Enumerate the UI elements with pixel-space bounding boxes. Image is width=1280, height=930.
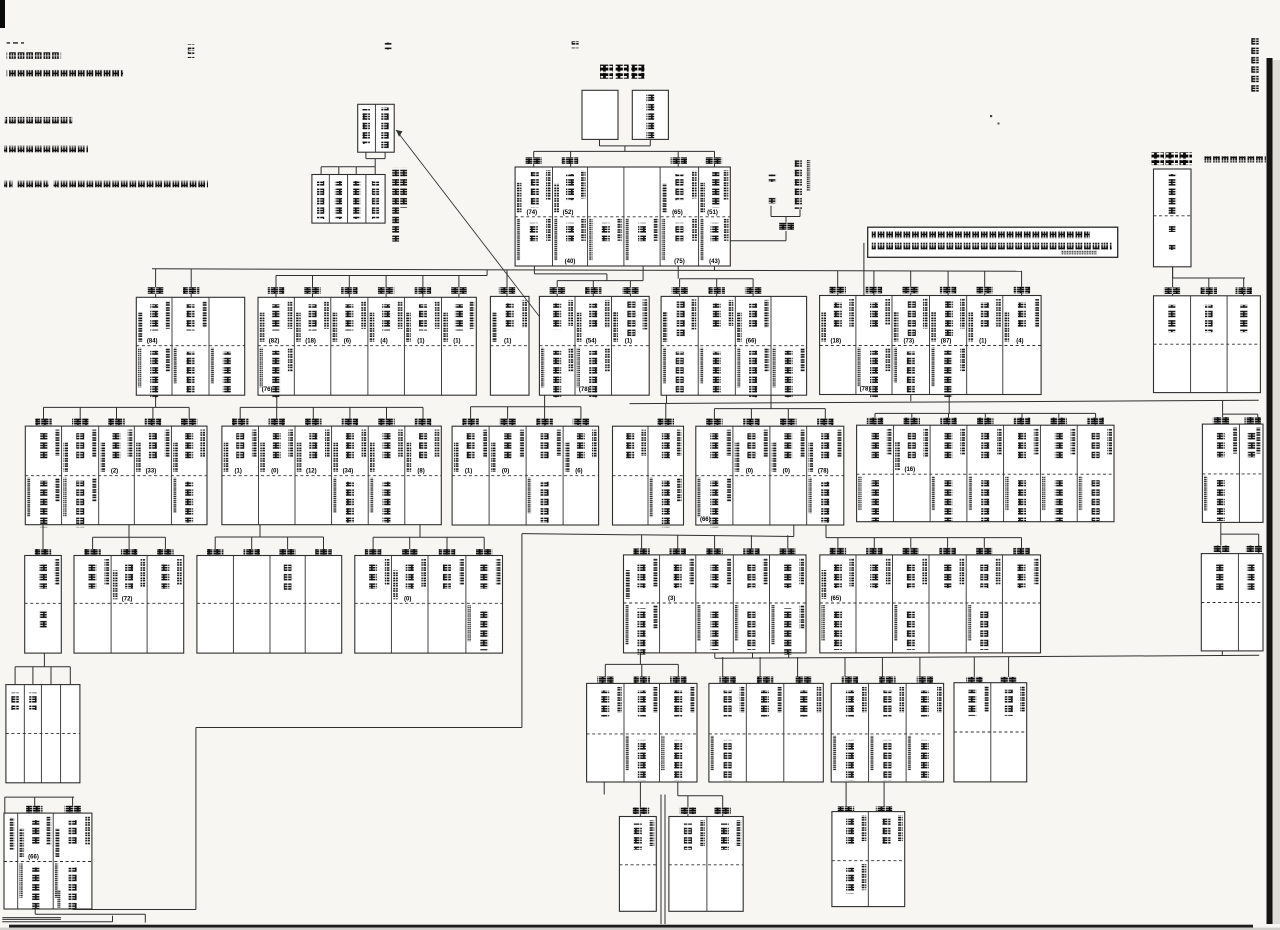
svg-text:(1): (1) [453, 339, 460, 345]
svg-text:(87): (87) [941, 339, 952, 345]
svg-text:(1): (1) [504, 339, 511, 345]
svg-text:(72): (72) [122, 596, 133, 602]
svg-text:(18): (18) [830, 339, 841, 345]
svg-text:(66): (66) [28, 855, 39, 861]
svg-text:(2): (2) [111, 469, 118, 475]
svg-text:(54): (54) [586, 339, 597, 345]
svg-text:(65): (65) [831, 596, 842, 602]
svg-text:(18): (18) [305, 339, 316, 345]
svg-text:(1): (1) [625, 339, 632, 345]
svg-text:(66): (66) [746, 339, 757, 345]
svg-text:(4): (4) [380, 339, 387, 345]
svg-text:(0): (0) [271, 469, 278, 475]
svg-text:(75): (75) [674, 259, 685, 265]
svg-text:(82): (82) [269, 339, 280, 345]
svg-text:(12): (12) [306, 469, 317, 475]
svg-text:(1): (1) [979, 339, 986, 345]
svg-text:(78): (78) [579, 387, 590, 393]
svg-text:(65): (65) [672, 210, 683, 216]
svg-text:(76): (76) [262, 387, 273, 393]
svg-text:(1): (1) [235, 469, 242, 475]
svg-text:(43): (43) [709, 259, 720, 265]
svg-text:(40): (40) [565, 259, 576, 265]
svg-text:(78): (78) [860, 387, 871, 393]
svg-text:(33): (33) [146, 469, 157, 475]
svg-text:(3): (3) [668, 596, 675, 602]
svg-text:(8): (8) [417, 469, 424, 475]
svg-text:(16): (16) [904, 467, 915, 473]
svg-text:(6): (6) [344, 339, 351, 345]
svg-text:(51): (51) [707, 210, 718, 216]
svg-text:(84): (84) [147, 339, 158, 345]
svg-text:(1): (1) [465, 469, 472, 475]
svg-text:(4): (4) [1016, 339, 1023, 345]
svg-text:(66): (66) [700, 517, 711, 523]
svg-text:(0): (0) [404, 596, 411, 602]
svg-text:(73): (73) [903, 339, 914, 345]
svg-text:(6): (6) [575, 469, 582, 475]
svg-text:(0): (0) [746, 469, 753, 475]
svg-text:(1): (1) [417, 339, 424, 345]
svg-text:(52): (52) [563, 210, 574, 216]
svg-text:(34): (34) [343, 469, 354, 475]
svg-text:(74): (74) [526, 210, 537, 216]
svg-text:(0): (0) [502, 469, 509, 475]
svg-text:(78): (78) [818, 469, 829, 475]
svg-text:(0): (0) [783, 469, 790, 475]
